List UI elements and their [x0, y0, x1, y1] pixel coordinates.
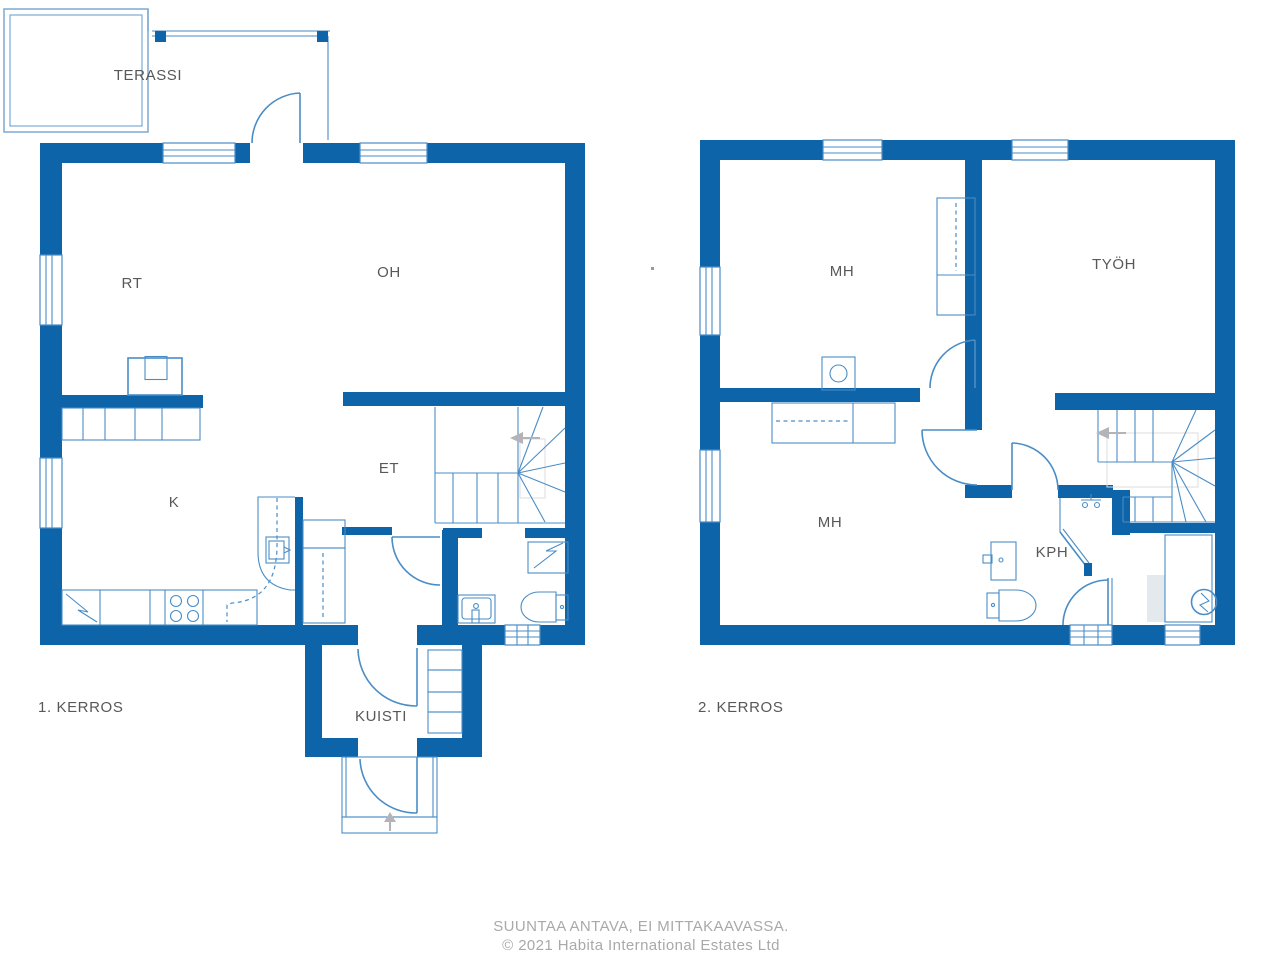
floor1-walls	[40, 143, 585, 757]
room-label-kuisti: KUISTI	[355, 708, 407, 725]
door-swing-terrace	[252, 93, 300, 143]
stray-dot	[651, 267, 654, 270]
chimney-icon	[822, 357, 855, 390]
room-label-rt: RT	[122, 275, 143, 292]
window	[163, 143, 235, 163]
window	[700, 267, 720, 335]
room-label-et: ET	[379, 460, 399, 477]
door-swing-mh-lower	[922, 430, 977, 485]
floorplan-page: TERASSI RT OH K ET KUISTI 1. KERROS	[0, 0, 1280, 960]
floor1-plan: TERASSI RT OH K ET KUISTI 1. KERROS	[4, 9, 585, 833]
wall-mh-middle	[720, 388, 920, 402]
window	[40, 458, 62, 528]
room-label-k: K	[169, 494, 180, 511]
fireplace-icon	[128, 357, 182, 396]
floorplan-canvas: TERASSI RT OH K ET KUISTI 1. KERROS	[0, 0, 1280, 960]
terrace-post	[155, 31, 166, 42]
stair-direction-arrow	[510, 432, 540, 444]
staircase-floor1	[435, 407, 565, 523]
kitchen-sink-icon	[266, 537, 290, 563]
sauna-step	[1147, 575, 1165, 622]
kph-sink-icon	[983, 542, 1016, 580]
window	[823, 140, 882, 160]
window	[1070, 625, 1112, 645]
kph-toilet-icon	[987, 590, 1036, 621]
window	[360, 143, 427, 163]
floor1-title: 1. KERROS	[38, 699, 123, 716]
window	[1165, 625, 1200, 645]
floor2-plan: MH TYÖH MH KPH 2. KERROS	[698, 140, 1235, 716]
dresser-mh-lower	[772, 403, 895, 443]
wall-wc	[442, 530, 458, 645]
door-swing-kuisti-outer	[360, 757, 417, 813]
wall-stairhall-sauna	[1123, 523, 1215, 533]
shower-icon	[1060, 494, 1101, 576]
room-label-oh: OH	[377, 264, 401, 281]
floor2-title: 2. KERROS	[698, 699, 783, 716]
door-swing-et-closet	[392, 537, 440, 585]
wall-oh-et	[343, 392, 585, 406]
wc-toilet-icon	[521, 592, 568, 622]
window	[700, 450, 720, 522]
door-swing-kuisti-inner	[358, 648, 417, 706]
footer-disclaimer: SUUNTAA ANTAVA, EI MITTAKAAVASSA.	[493, 918, 788, 935]
terrace-post	[317, 31, 328, 42]
room-label-mh-lower: MH	[818, 514, 843, 531]
door-swing-sauna	[1063, 578, 1112, 625]
stair-direction-arrow	[1096, 427, 1126, 439]
footer: SUUNTAA ANTAVA, EI MITTAKAAVASSA. © 2021…	[493, 918, 788, 954]
wall-rt-k	[62, 395, 203, 408]
room-label-kph: KPH	[1036, 544, 1069, 561]
wall-tyoh-bottom	[1055, 393, 1215, 410]
sauna-fixtures	[1147, 535, 1217, 622]
floor1-doors	[252, 93, 440, 813]
room-label-mh-upper: MH	[830, 263, 855, 280]
window	[1012, 140, 1068, 160]
door-swing-kph	[1012, 443, 1058, 490]
room-label-tyoh: TYÖH	[1092, 255, 1136, 273]
window	[505, 625, 540, 645]
wc-sink-icon	[458, 595, 495, 623]
footer-copyright: © 2021 Habita International Estates Ltd	[502, 937, 780, 954]
floor2-walls	[700, 140, 1235, 645]
window	[40, 255, 62, 325]
dishwasher-outline	[227, 498, 277, 622]
wc-fixtures	[458, 542, 568, 623]
stove-icon	[171, 596, 199, 622]
entry-arrow	[384, 812, 396, 831]
room-label-terassi: TERASSI	[114, 67, 182, 84]
electrical-panel-icon	[528, 542, 568, 573]
kitchen-cabinet	[303, 520, 345, 623]
wall-kitchen-stub	[295, 497, 303, 625]
counter-rt	[62, 408, 200, 440]
sauna-heater-icon	[1192, 590, 1217, 615]
fridge-icon	[66, 594, 97, 622]
floor2-doors	[922, 340, 1112, 625]
